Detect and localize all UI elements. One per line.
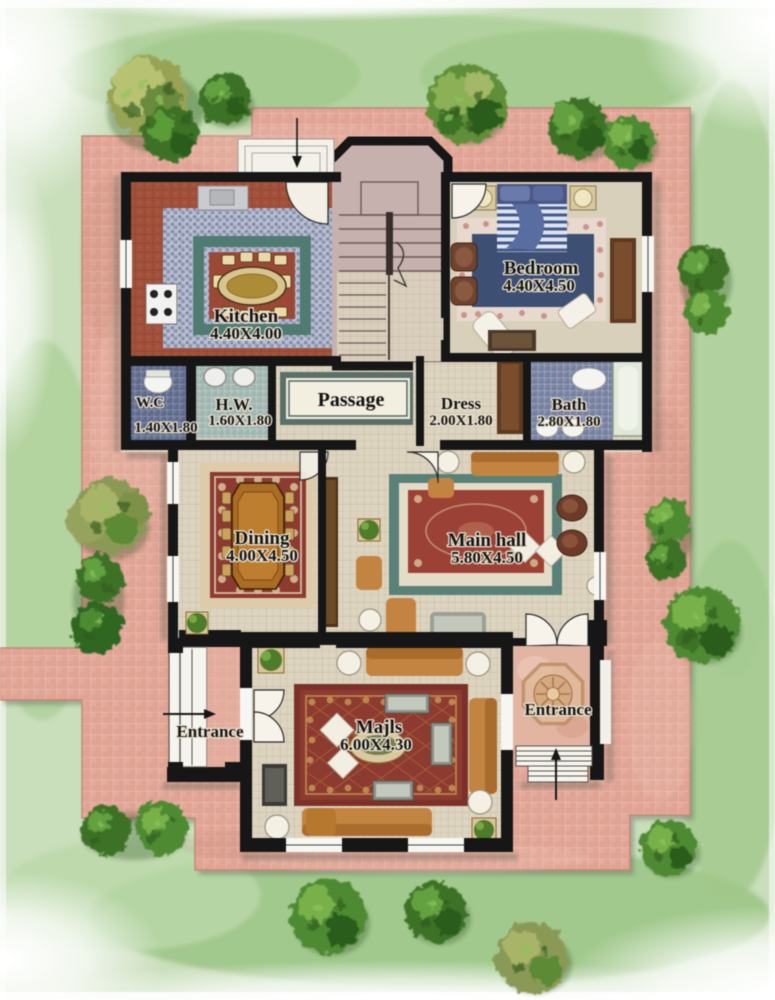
svg-text:Bath: Bath (552, 395, 588, 414)
svg-text:1.60X1.80: 1.60X1.80 (208, 413, 271, 429)
svg-text:Entrance: Entrance (176, 722, 244, 741)
svg-text:2.80X1.80: 2.80X1.80 (537, 414, 600, 430)
svg-text:Dress: Dress (441, 394, 482, 413)
svg-text:Entrance: Entrance (524, 700, 592, 719)
svg-text:1.40X1.80: 1.40X1.80 (134, 420, 197, 436)
svg-text:5.80X4.50: 5.80X4.50 (451, 548, 523, 567)
svg-text:6.00X4.30: 6.00X4.30 (340, 735, 412, 754)
svg-text:Passage: Passage (318, 389, 385, 411)
svg-text:W.C: W.C (136, 395, 164, 411)
svg-text:2.00X1.80: 2.00X1.80 (429, 413, 492, 429)
svg-text:4.40X4.00: 4.40X4.00 (210, 324, 282, 343)
svg-text:4.00X4.50: 4.00X4.50 (226, 546, 298, 565)
svg-text:4.40X4.50: 4.40X4.50 (503, 276, 575, 295)
svg-text:H.W.: H.W. (215, 395, 252, 414)
